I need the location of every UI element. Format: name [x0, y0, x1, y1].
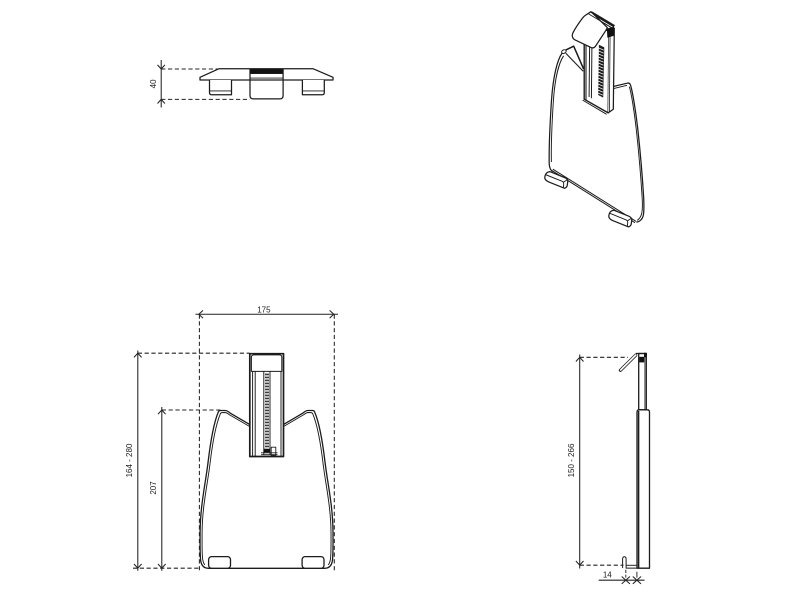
svg-text:14: 14	[603, 570, 612, 579]
svg-text:164 - 280: 164 - 280	[125, 443, 134, 477]
svg-text:150 - 266: 150 - 266	[567, 443, 576, 477]
svg-text:207: 207	[149, 481, 158, 495]
svg-text:175: 175	[257, 305, 271, 314]
svg-text:40: 40	[149, 79, 158, 88]
